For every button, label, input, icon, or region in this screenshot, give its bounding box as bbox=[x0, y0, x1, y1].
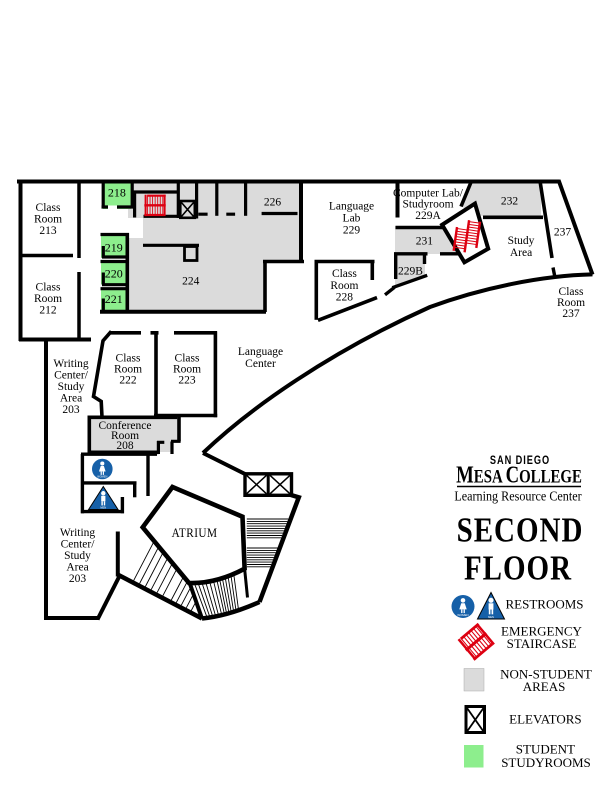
svg-text:ATRIUM: ATRIUM bbox=[172, 525, 218, 540]
svg-text:STAIRCASE: STAIRCASE bbox=[507, 636, 577, 651]
svg-text:229B: 229B bbox=[398, 266, 423, 278]
svg-text:219: 219 bbox=[105, 241, 123, 255]
svg-text:AREAS: AREAS bbox=[523, 679, 566, 694]
svg-text:RESTROOMS: RESTROOMS bbox=[506, 597, 584, 612]
svg-text:FLOOR: FLOOR bbox=[464, 548, 572, 587]
svg-text:Learning Resource Center: Learning Resource Center bbox=[454, 488, 582, 504]
svg-text:WOMEN: WOMEN bbox=[457, 613, 468, 617]
svg-text:ELEVATORS: ELEVATORS bbox=[509, 711, 581, 726]
svg-text:221: 221 bbox=[105, 292, 123, 306]
svg-text:MEN: MEN bbox=[100, 505, 106, 509]
svg-text:STUDYROOMS: STUDYROOMS bbox=[501, 755, 591, 770]
svg-text:StudyArea: StudyArea bbox=[508, 235, 535, 259]
svg-text:218: 218 bbox=[108, 186, 126, 200]
svg-text:231: 231 bbox=[416, 236, 434, 248]
svg-text:SECOND: SECOND bbox=[457, 510, 584, 549]
svg-text:MESA COLLEGE: MESA COLLEGE bbox=[456, 461, 582, 488]
svg-text:232: 232 bbox=[501, 195, 519, 207]
svg-text:MEN: MEN bbox=[488, 615, 494, 619]
svg-text:226: 226 bbox=[264, 196, 282, 208]
svg-text:220: 220 bbox=[105, 267, 123, 281]
svg-text:237: 237 bbox=[554, 226, 572, 238]
svg-text:224: 224 bbox=[182, 275, 200, 287]
svg-text:WOMEN: WOMEN bbox=[97, 474, 107, 478]
